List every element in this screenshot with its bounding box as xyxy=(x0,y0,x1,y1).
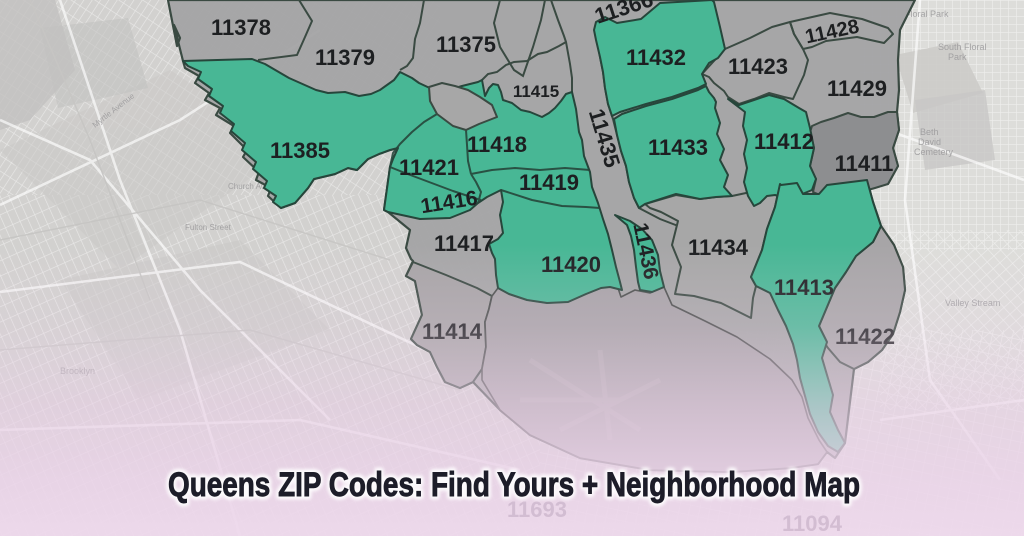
svg-text:Queens ZIP Codes: Find Yours +: Queens ZIP Codes: Find Yours + Neighborh… xyxy=(168,466,860,504)
svg-text:11094: 11094 xyxy=(782,511,843,536)
